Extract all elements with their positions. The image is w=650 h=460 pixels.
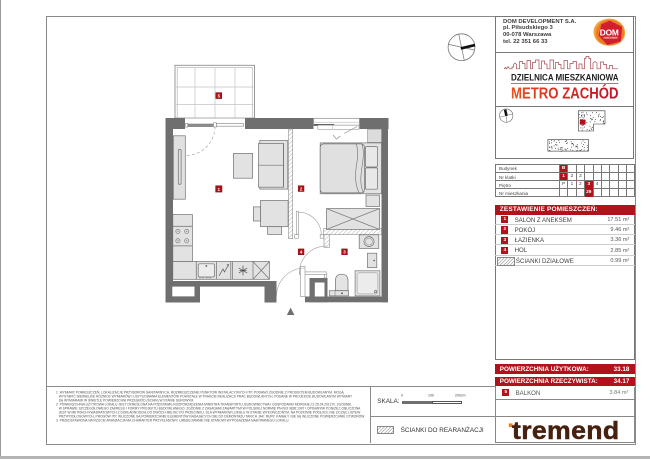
svg-text:tremend: tremend	[512, 417, 619, 444]
